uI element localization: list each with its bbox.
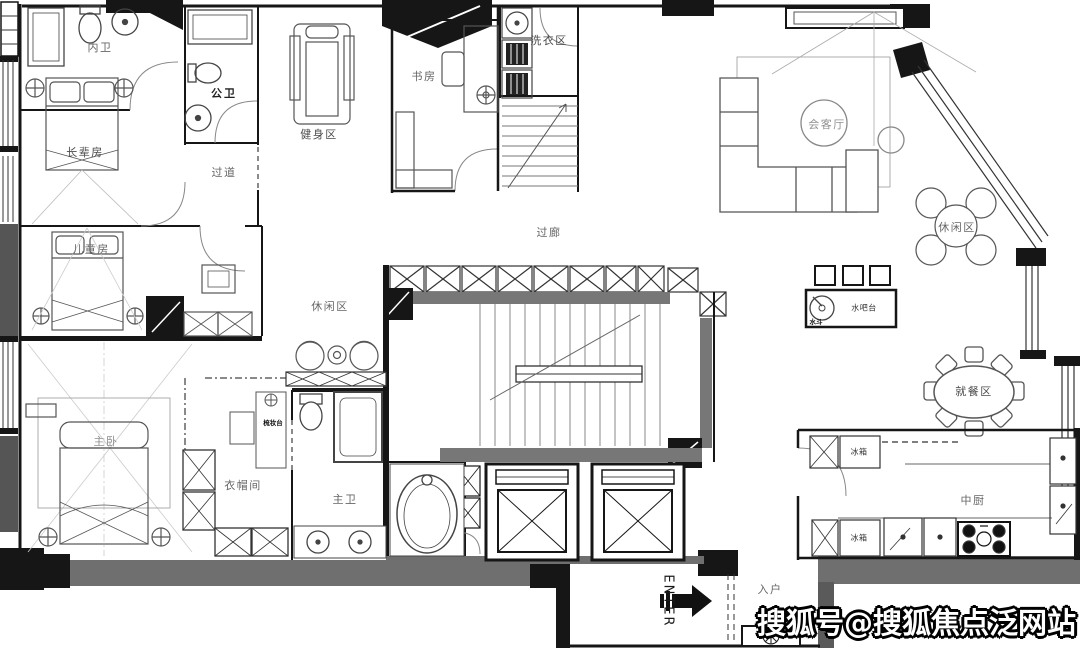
left-windows	[0, 2, 18, 532]
room-label-reception: 会客厅	[808, 116, 846, 132]
room-label-gym: 健身区	[300, 126, 338, 142]
elevators	[456, 464, 684, 560]
reception-furniture	[720, 12, 976, 212]
fixture-label-vanity: 梳妆台	[263, 417, 283, 427]
study-furniture	[396, 26, 498, 188]
main-stairs	[480, 304, 660, 446]
room-label-dining: 就餐区	[955, 383, 993, 399]
fixture-label-sink: 水斗	[810, 316, 823, 326]
room-label-kitchen: 中厨	[961, 492, 986, 508]
enter-label: ENTER	[661, 574, 676, 627]
fixture-label-fridge-bottom: 冰箱	[851, 533, 868, 544]
room-label-master-bedroom: 主卧	[94, 433, 119, 449]
room-label-study: 书房	[412, 68, 437, 84]
room-label-inner-bath: 内卫	[88, 39, 113, 55]
room-label-elder-room: 长辈房	[66, 144, 104, 160]
shaft-hatch-band	[390, 266, 726, 316]
tv-console	[786, 8, 904, 28]
room-label-gallery: 过廊	[537, 224, 562, 240]
room-label-master-bath: 主卫	[333, 491, 358, 507]
master-bath-fixtures	[294, 392, 464, 558]
room-label-kids-room: 儿童房	[72, 241, 110, 257]
fixture-label-water-bar: 水吧台	[851, 303, 877, 314]
room-label-leisure-right: 休闲区	[938, 219, 976, 235]
treadmill-icon	[290, 24, 354, 124]
room-label-leisure-left: 休闲区	[311, 298, 349, 314]
master-bedroom-furniture	[26, 342, 192, 556]
enter-arrow-icon	[672, 585, 712, 617]
kids-room-furniture	[32, 228, 252, 336]
room-label-public-bath: 公卫	[211, 85, 237, 101]
fixture-label-fridge-top: 冰箱	[851, 447, 868, 458]
room-label-laundry: 洗衣区	[530, 32, 568, 48]
upper-stairs	[502, 104, 578, 188]
room-label-cloakroom: 衣帽间	[224, 477, 262, 493]
washer-stack-icon	[502, 8, 532, 98]
public-bath-fixtures	[185, 10, 252, 131]
inner-bath-fixtures	[28, 6, 138, 66]
floor-plan-drawing	[0, 0, 1080, 648]
floor-plan: 内卫 公卫 长辈房 过道 健身区 书房 洗衣区 会客厅 休闲区 过廊 休闲区 儿…	[0, 0, 1080, 648]
room-label-entry: 入户	[758, 581, 783, 597]
leisure-left-furniture	[286, 341, 386, 386]
room-label-corridor: 过道	[212, 164, 237, 180]
watermark: 搜狐号@搜狐焦点泛网站	[757, 600, 1076, 642]
